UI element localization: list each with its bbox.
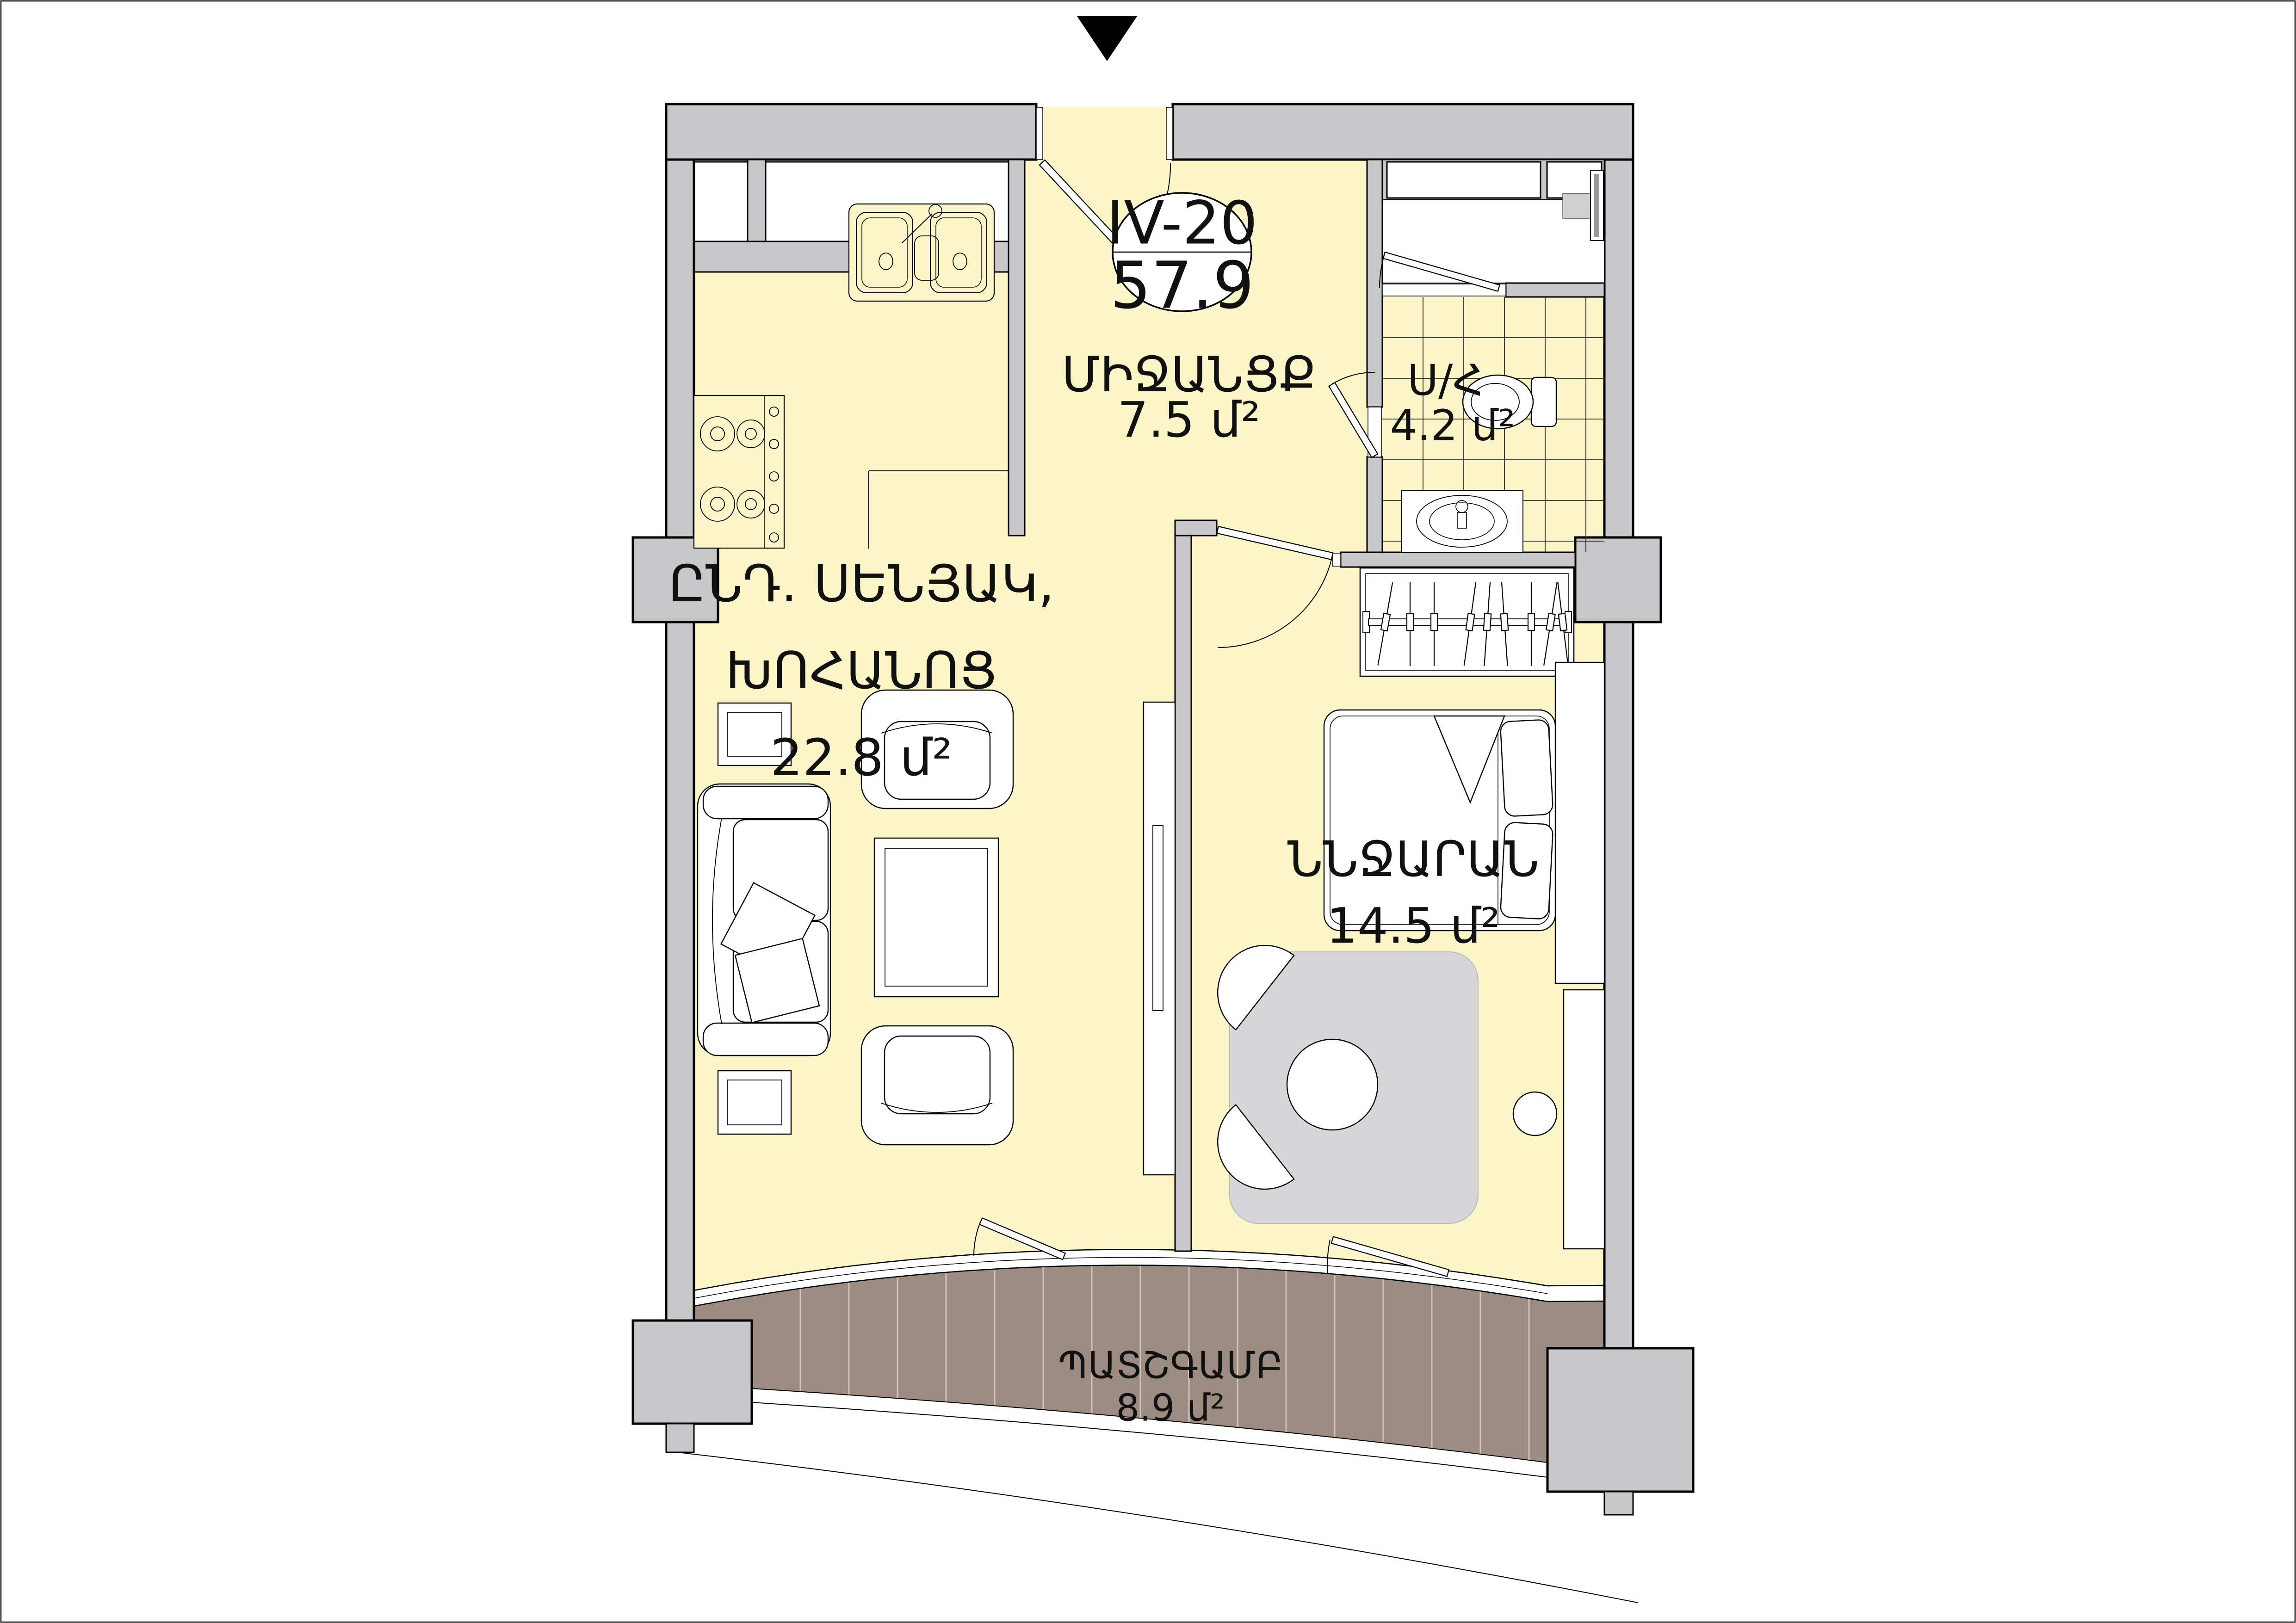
fixture-panel-icon	[1563, 193, 1590, 218]
floor-entry-threshold	[1036, 107, 1173, 160]
pier-left-bottom	[633, 1321, 752, 1424]
balcony-name: ՊԱՏՇԳԱՄԲ	[1058, 1344, 1283, 1387]
balcony-area: 8.9 մ²	[1116, 1387, 1225, 1430]
kitchen-window-small	[694, 162, 748, 241]
floorplan-drawing: IV-20 57.9 ՄԻՋԱՆՑՔ 7.5 մ² Ս/Հ 4.2 մ² ԸՆԴ…	[0, 0, 2296, 1623]
living-area: 22.8 մ²	[770, 728, 953, 787]
wall-bedroom-door-stub	[1175, 520, 1217, 536]
floorplan-canvas: IV-20 57.9 ՄԻՋԱՆՑՔ 7.5 մ² Ս/Հ 4.2 մ² ԸՆԴ…	[0, 0, 2296, 1623]
unit-code: IV-20	[1107, 189, 1258, 258]
sofa	[698, 784, 830, 1055]
wall-bathroom-top	[1506, 283, 1604, 297]
wall-right	[1604, 160, 1633, 1348]
wall-top-left	[666, 104, 1036, 160]
wall-bathroom-left-lower	[1367, 457, 1382, 552]
wall-right-stub	[1604, 1492, 1633, 1515]
unit-label-badge: IV-20 57.9	[1107, 189, 1258, 324]
kitchen-sink-icon	[849, 204, 994, 301]
pier-right-mid	[1575, 537, 1661, 622]
bedroom-area: 14.5 մ²	[1326, 898, 1500, 954]
shaft-left	[1387, 162, 1541, 198]
balcony-outer-edge-line	[670, 1451, 1638, 1603]
stool	[1513, 1092, 1557, 1135]
wall-below-bathroom	[1341, 552, 1575, 567]
bathroom-area: 4.2 մ²	[1390, 401, 1516, 450]
desk-console	[1564, 990, 1604, 1249]
armchair-bottom	[861, 1026, 1013, 1145]
entry-jamb-right	[1166, 107, 1173, 160]
wall-niche-cabinet	[1555, 662, 1604, 983]
bathroom-sink-icon	[1402, 490, 1523, 552]
entry-jamb-left	[1036, 107, 1043, 160]
bedroom-door-jamb	[1332, 553, 1341, 566]
wardrobe-closet	[1360, 568, 1574, 676]
bathroom-name: Ս/Հ	[1407, 356, 1483, 405]
side-table-bottom	[718, 1071, 791, 1134]
towel-rail-bar	[1594, 174, 1599, 237]
wall-living-bedroom	[1175, 520, 1191, 1251]
round-table	[1287, 1039, 1378, 1130]
window-mullion	[748, 160, 766, 243]
coffee-table	[874, 838, 998, 997]
living-name-2: ԽՈՀԱՆՈՑ	[725, 641, 997, 700]
stove-icon	[694, 395, 784, 548]
bedroom-name: ՆՆՋԱՐԱՆ	[1287, 831, 1539, 888]
wall-left	[666, 160, 694, 1322]
unit-total-area: 57.9	[1110, 248, 1254, 324]
wall-kitchen-hallway	[1009, 160, 1025, 536]
hallway-area: 7.5 մ²	[1117, 392, 1260, 448]
wall-left-stub	[666, 1424, 694, 1452]
living-name-1: ԸՆԴ. ՍԵՆՅԱԿ,	[668, 554, 1055, 613]
tv-cabinet	[1144, 702, 1175, 1175]
entrance-arrow-icon	[1077, 16, 1137, 61]
pier-right-bottom	[1547, 1348, 1693, 1492]
wall-top-right	[1173, 104, 1633, 160]
